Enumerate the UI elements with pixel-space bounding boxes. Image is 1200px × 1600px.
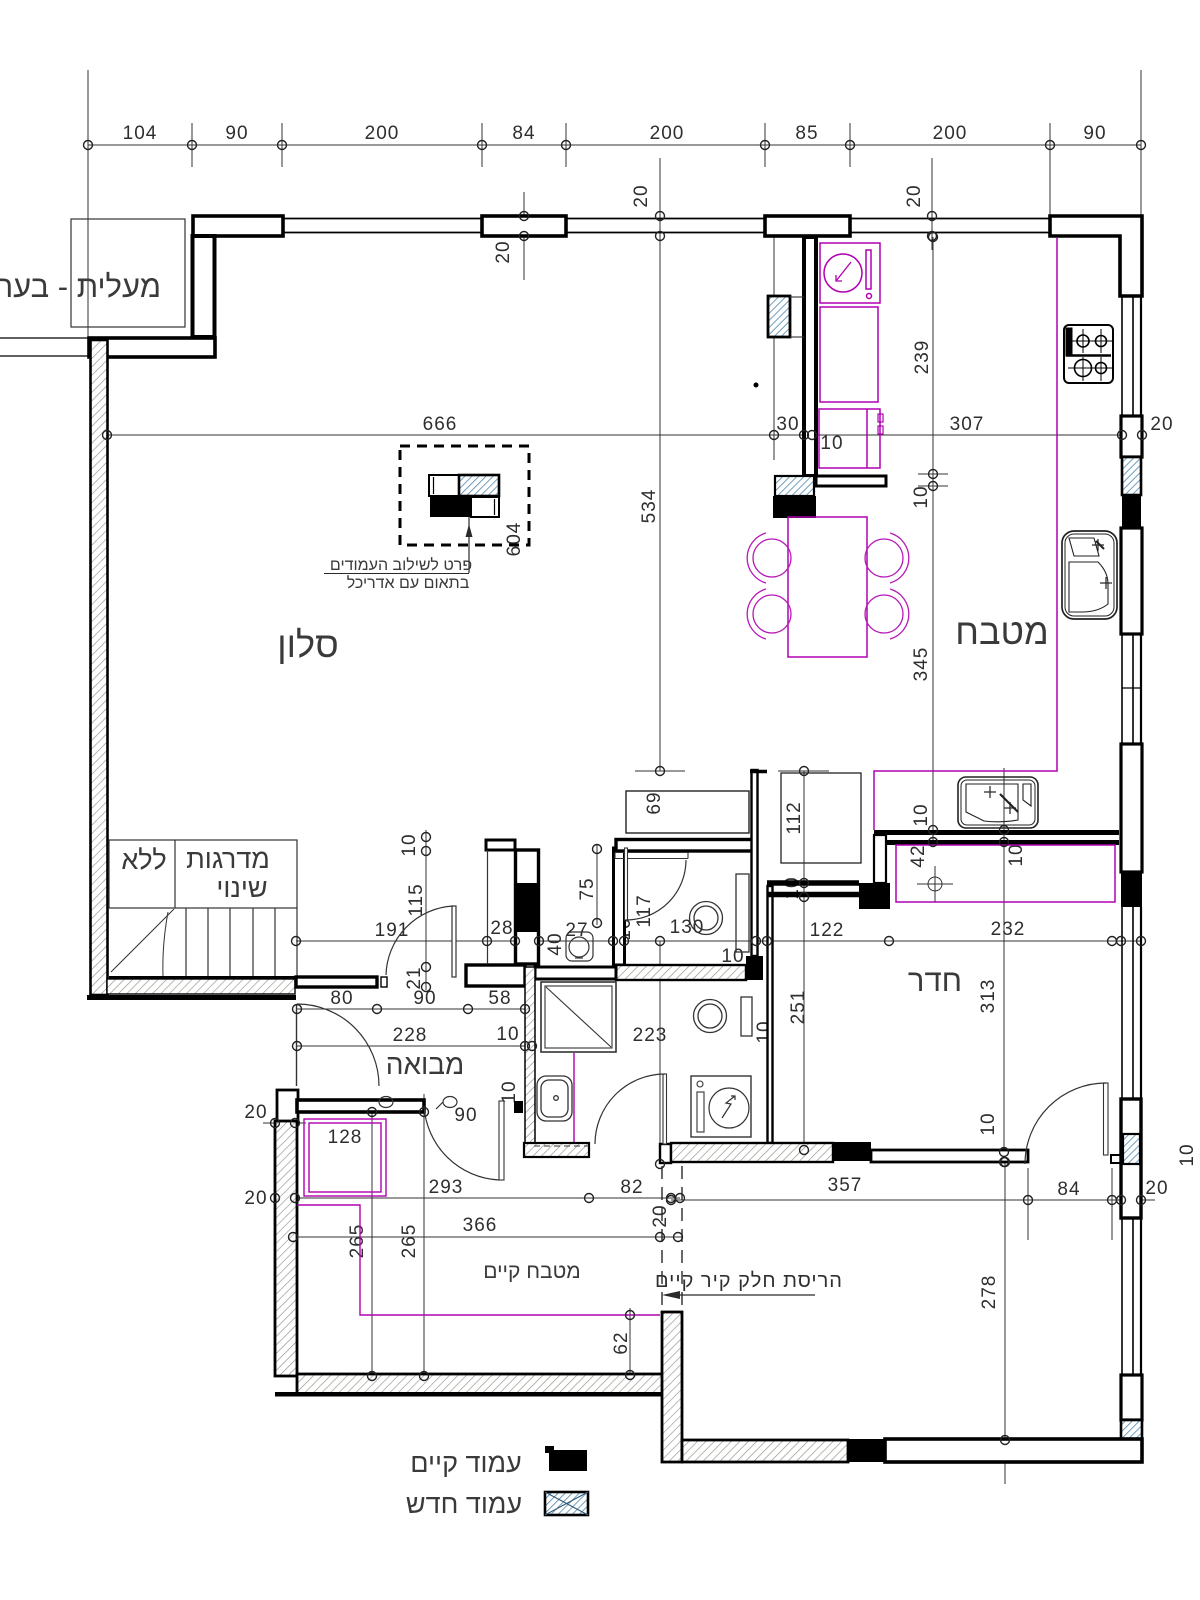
svg-text:104: 104 — [123, 123, 158, 144]
svg-text:סלון: סלון — [277, 624, 338, 665]
svg-text:20: 20 — [631, 184, 652, 207]
svg-text:223: 223 — [633, 1025, 668, 1046]
svg-text:10: 10 — [399, 833, 420, 856]
svg-text:62: 62 — [611, 1331, 632, 1354]
svg-text:שינוי: שינוי — [216, 873, 267, 903]
svg-text:מעלית - בערב: מעלית - בערב — [0, 269, 161, 304]
svg-text:30: 30 — [776, 414, 799, 435]
svg-text:42: 42 — [908, 844, 929, 867]
svg-text:534: 534 — [639, 489, 660, 524]
svg-text:366: 366 — [463, 1215, 498, 1236]
svg-text:69: 69 — [644, 791, 665, 814]
svg-text:20: 20 — [904, 184, 925, 207]
svg-text:265: 265 — [347, 1224, 368, 1259]
svg-text:10: 10 — [1177, 1143, 1198, 1166]
svg-text:307: 307 — [950, 414, 985, 435]
svg-text:90: 90 — [454, 1105, 477, 1126]
svg-text:251: 251 — [788, 990, 809, 1025]
svg-text:בתאום עם אדריכל: בתאום עם אדריכל — [347, 574, 470, 592]
svg-text:112: 112 — [784, 801, 805, 834]
svg-text:293: 293 — [429, 1177, 464, 1198]
svg-text:מדרגות: מדרגות — [186, 844, 270, 874]
svg-text:191: 191 — [375, 920, 410, 941]
svg-text:28: 28 — [490, 918, 513, 939]
svg-text:345: 345 — [911, 647, 932, 682]
svg-text:200: 200 — [365, 123, 400, 144]
svg-text:10: 10 — [911, 803, 932, 826]
svg-text:מבואה: מבואה — [386, 1049, 465, 1080]
svg-text:200: 200 — [933, 123, 968, 144]
svg-text:75: 75 — [577, 877, 598, 900]
svg-text:20: 20 — [1150, 414, 1173, 435]
svg-text:20: 20 — [493, 240, 514, 263]
svg-text:122: 122 — [810, 920, 845, 941]
svg-text:10: 10 — [1006, 843, 1027, 866]
svg-text:115: 115 — [406, 883, 427, 916]
svg-text:20: 20 — [1145, 1178, 1168, 1199]
svg-text:80: 80 — [330, 988, 353, 1009]
svg-text:פרט לשילוב העמודים: פרט לשילוב העמודים — [330, 556, 472, 574]
svg-text:604: 604 — [504, 522, 525, 557]
svg-text:84: 84 — [1057, 1179, 1080, 1200]
svg-text:58: 58 — [488, 988, 511, 1009]
svg-text:84: 84 — [512, 123, 535, 144]
svg-text:85: 85 — [795, 123, 818, 144]
svg-text:10: 10 — [978, 1112, 999, 1135]
svg-text:357: 357 — [828, 1175, 863, 1196]
svg-text:278: 278 — [979, 1275, 1000, 1310]
svg-text:666: 666 — [423, 414, 458, 435]
svg-text:10: 10 — [820, 433, 843, 454]
svg-text:מטבח קיים: מטבח קיים — [483, 1260, 580, 1283]
svg-text:265: 265 — [399, 1224, 420, 1259]
svg-text:10: 10 — [496, 1024, 519, 1045]
svg-text:20: 20 — [244, 1188, 267, 1209]
svg-text:232: 232 — [991, 919, 1026, 940]
svg-text:239: 239 — [912, 340, 933, 375]
svg-text:82: 82 — [620, 1177, 643, 1198]
svg-text:200: 200 — [650, 123, 685, 144]
svg-text:עמוד חדש: עמוד חדש — [406, 1489, 522, 1519]
svg-text:עמוד קיים: עמוד קיים — [410, 1448, 521, 1478]
svg-text:ללא: ללא — [121, 845, 166, 875]
svg-text:מטבח: מטבח — [955, 611, 1048, 652]
svg-text:90: 90 — [225, 123, 248, 144]
svg-text:228: 228 — [393, 1025, 428, 1046]
svg-text:40: 40 — [545, 932, 566, 955]
svg-text:20: 20 — [650, 1204, 671, 1227]
svg-text:313: 313 — [978, 979, 999, 1014]
svg-text:10: 10 — [499, 1080, 520, 1103]
svg-text:117: 117 — [634, 894, 655, 927]
svg-text:128: 128 — [328, 1127, 363, 1148]
svg-text:20: 20 — [244, 1102, 267, 1123]
svg-text:27: 27 — [565, 920, 588, 941]
svg-text:הריסת חלק קיר קיים: הריסת חלק קיר קיים — [655, 1270, 843, 1292]
svg-text:חדר: חדר — [908, 963, 962, 998]
svg-text:90: 90 — [1083, 123, 1106, 144]
